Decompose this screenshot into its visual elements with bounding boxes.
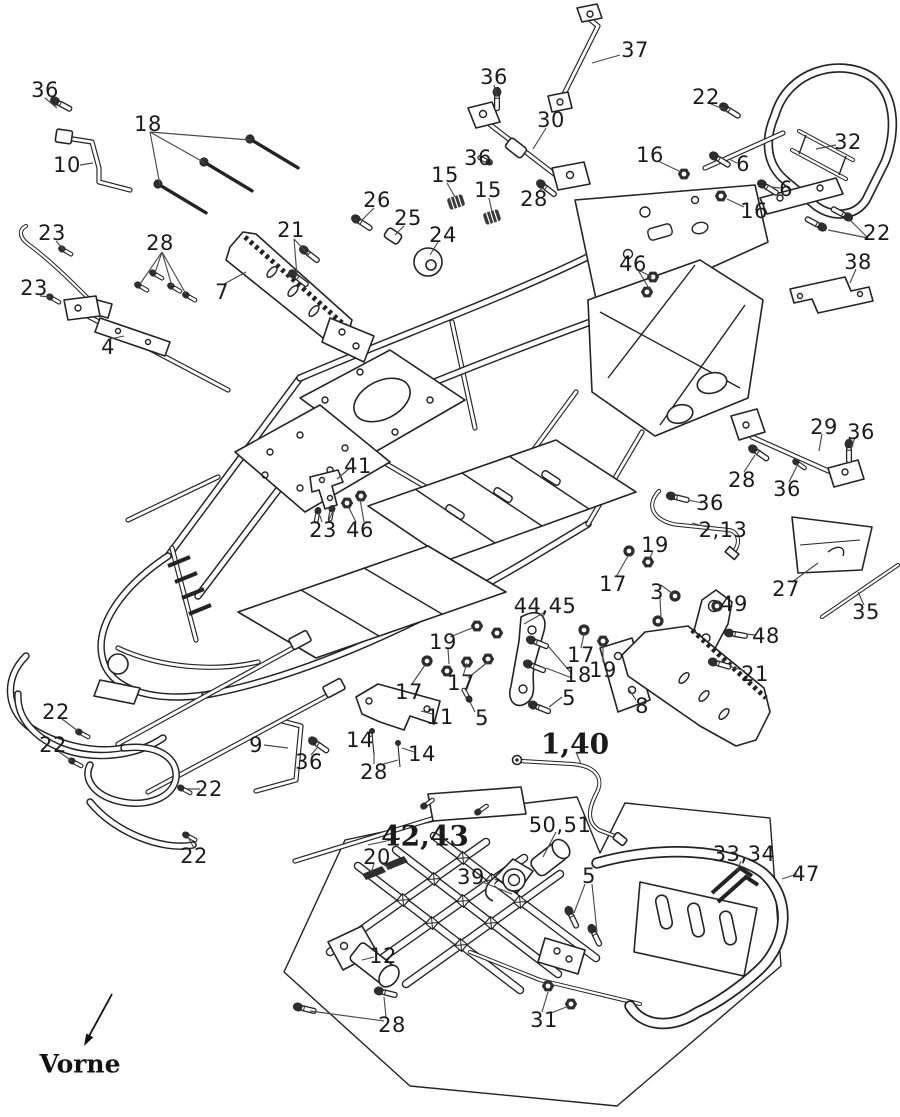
part-label-46: 46 [619, 252, 647, 276]
part-label-10: 10 [53, 153, 81, 177]
part-label-22: 22 [39, 733, 67, 757]
part-label-33-34: 33,34 [713, 842, 776, 866]
part-label-38: 38 [844, 250, 872, 274]
part-label-16: 16 [636, 143, 664, 167]
part-label-21: 21 [277, 218, 305, 242]
part-label-22: 22 [195, 777, 223, 801]
part-labels-layer: 3618102328237212625241515436303628372216… [0, 0, 900, 1117]
part-label-48: 48 [752, 624, 780, 648]
part-label-20: 20 [363, 845, 391, 869]
part-label-22: 22 [692, 85, 720, 109]
part-label-46: 46 [346, 518, 374, 542]
part-label-22: 22 [42, 700, 70, 724]
part-label-21: 21 [741, 662, 769, 686]
part-label-8: 8 [635, 694, 649, 718]
part-label-17: 17 [599, 572, 627, 596]
part-label-14: 14 [408, 742, 436, 766]
diagram-page: 3618102328237212625241515436303628372216… [0, 0, 900, 1117]
part-label-15: 15 [474, 178, 502, 202]
part-label-18: 18 [564, 663, 592, 687]
part-label-31: 31 [530, 1008, 558, 1032]
part-label-5: 5 [475, 706, 489, 730]
part-label-42-43: 42,43 [381, 820, 469, 853]
part-label-36: 36 [31, 78, 59, 102]
part-label-5: 5 [582, 864, 596, 888]
part-label-6: 6 [779, 177, 793, 201]
part-label-50-51: 50,51 [529, 813, 592, 837]
part-label-28: 28 [728, 468, 756, 492]
part-label-28: 28 [520, 187, 548, 211]
part-label-36: 36 [464, 146, 492, 170]
part-label-19: 19 [641, 533, 669, 557]
part-label-47: 47 [792, 862, 820, 886]
part-label-5: 5 [562, 686, 576, 710]
part-label-11: 11 [426, 705, 454, 729]
part-label-17: 17 [395, 680, 423, 704]
part-label-32: 32 [834, 130, 862, 154]
part-label-6: 6 [736, 152, 750, 176]
part-label-15: 15 [431, 163, 459, 187]
part-label-19: 19 [589, 658, 617, 682]
part-label-23: 23 [20, 276, 48, 300]
part-label-3: 3 [650, 580, 664, 604]
part-label-30: 30 [537, 108, 565, 132]
part-label-14: 14 [346, 728, 374, 752]
part-label-28: 28 [146, 231, 174, 255]
part-label-36: 36 [847, 420, 875, 444]
part-label-22: 22 [863, 221, 891, 245]
part-label-17: 17 [447, 671, 475, 695]
part-label-23: 23 [309, 518, 337, 542]
part-label-37: 37 [621, 38, 649, 62]
part-label-39: 39 [457, 865, 485, 889]
part-label-9: 9 [249, 733, 263, 757]
part-label-25: 25 [394, 206, 422, 230]
part-label-18: 18 [134, 112, 162, 136]
part-label-7: 7 [215, 280, 229, 304]
part-label-36: 36 [773, 477, 801, 501]
part-label-28: 28 [378, 1013, 406, 1037]
part-label-36: 36 [295, 750, 323, 774]
orientation-label: Vorne [39, 1050, 120, 1079]
part-label-29: 29 [810, 415, 838, 439]
part-label-19: 19 [429, 630, 457, 654]
part-label-16: 16 [740, 199, 768, 223]
part-label-4: 4 [101, 335, 115, 359]
part-label-49: 49 [720, 592, 748, 616]
part-label-24: 24 [429, 223, 457, 247]
part-label-36: 36 [480, 65, 508, 89]
part-label-41: 41 [344, 454, 372, 478]
part-label-44-45: 44,45 [514, 594, 577, 618]
part-label-28: 28 [360, 760, 388, 784]
part-label-27: 27 [772, 577, 800, 601]
part-label-23: 23 [38, 221, 66, 245]
part-label-26: 26 [363, 188, 391, 212]
part-label-1-40: 1,40 [541, 728, 609, 761]
part-label-22: 22 [180, 844, 208, 868]
part-label-2-13: 2,13 [699, 518, 748, 542]
part-label-35: 35 [852, 600, 880, 624]
part-label-36: 36 [696, 491, 724, 515]
part-label-12: 12 [369, 944, 397, 968]
